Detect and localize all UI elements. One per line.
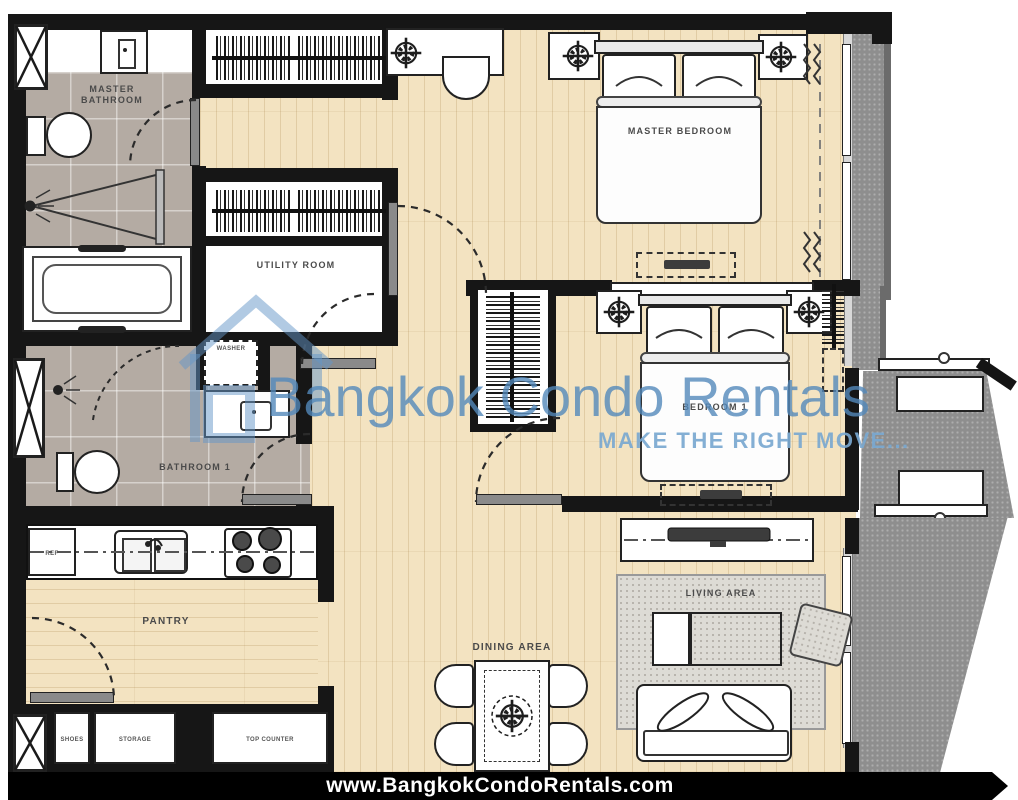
wall-corner-nub	[872, 28, 892, 44]
basin-icon	[118, 39, 136, 69]
room-label-dining-area: DINING AREA	[452, 642, 572, 655]
pillow	[718, 306, 784, 358]
washer: WASHER	[204, 340, 258, 386]
wall-closet2-top	[196, 168, 398, 182]
refrigerator: REF	[28, 528, 76, 576]
bedroom1-wardrobe-hangers	[822, 288, 844, 344]
footer-arrow	[992, 772, 1008, 800]
faucet-dot	[252, 410, 256, 414]
refrigerator-label: REF	[30, 551, 74, 557]
ac-condenser-unit	[896, 376, 984, 412]
utility-room-floor	[204, 244, 394, 332]
wall-masterbath-right-lower	[192, 166, 206, 344]
wall-closet2-bottom	[196, 236, 398, 246]
room-label-bathroom-1: BATHROOM 1	[140, 462, 250, 473]
bed-duvet	[596, 106, 762, 224]
washer-label: WASHER	[206, 346, 256, 352]
dining-table-runner	[484, 670, 540, 762]
room-label-master-bathroom: MASTER BATHROOM	[66, 84, 158, 107]
bathtub-grip	[78, 245, 126, 252]
bedroom1-wardrobe-door	[822, 348, 844, 392]
wall-closet1-bottom	[196, 84, 398, 98]
living-balcony-floor	[850, 518, 1014, 772]
bed-headboard	[594, 40, 764, 54]
faucet-dot	[123, 48, 127, 52]
dining-chair	[434, 664, 474, 708]
sink-icon	[240, 401, 272, 431]
basin-cabinet	[100, 30, 148, 74]
tv-console-living	[620, 518, 814, 562]
wall-washer-niche-right	[258, 346, 270, 390]
door-leaf-bedroom1	[476, 494, 562, 505]
sink-basin	[122, 538, 152, 572]
wall-masterbath-right-upper	[192, 30, 206, 98]
wardrobe-hangers	[486, 296, 540, 418]
room-label-living-area: LIVING AREA	[664, 588, 778, 599]
wall-living-east-stub	[845, 742, 859, 772]
door-leaf-master-bathroom	[190, 98, 200, 166]
wall-living-east-stub	[845, 518, 859, 554]
tv-ledge-master	[636, 252, 736, 278]
sofa-backrest	[643, 730, 789, 756]
sink-basin	[154, 538, 186, 572]
toilet-tank	[26, 116, 46, 156]
shaft-box	[13, 714, 47, 772]
closet-hangers	[216, 190, 290, 232]
master-balcony-floor	[852, 32, 884, 296]
drain-cap	[938, 352, 950, 364]
footer-bar: www.BangkokCondoRentals.com	[8, 772, 992, 800]
master-balcony-sliding-door	[842, 162, 851, 280]
tv-ledge-bedroom1	[660, 484, 772, 506]
shoes-cabinet: SHOES	[54, 712, 90, 764]
room-label-utility-room: UTILITY ROOM	[238, 260, 354, 271]
storage-cabinet: STORAGE	[94, 712, 176, 764]
top-counter-cabinet: TOP COUNTER	[212, 712, 328, 764]
coffee-table	[690, 612, 782, 666]
door-leaf-utility	[300, 358, 376, 369]
bathtub-basin	[42, 264, 172, 314]
wall-pantry-right-upper	[318, 506, 334, 602]
bathtub	[22, 246, 192, 332]
floor-plan: WASHER REF SHOES STORAGE TOP COUNTER	[0, 0, 1018, 800]
shoes-label: SHOES	[56, 737, 88, 743]
door-leaf-entry	[30, 692, 114, 703]
bed-headboard	[638, 294, 792, 306]
wall-masterbath-bottom	[24, 332, 200, 346]
master-balcony-rail	[884, 28, 891, 300]
vanity-counter	[204, 390, 290, 438]
wall-bedroom1-east	[845, 368, 859, 510]
room-label-bedroom-1: BEDROOM 1	[670, 402, 760, 413]
ac-condenser-unit	[898, 470, 984, 508]
pillow	[646, 306, 712, 358]
shaft-box	[14, 24, 48, 90]
nightstand	[548, 32, 600, 80]
toilet-bowl	[46, 112, 92, 158]
ac-ledge-sill-top	[878, 358, 990, 371]
kitchen-sink	[114, 530, 188, 574]
closet-hangers	[298, 36, 382, 80]
closet-hangers	[216, 36, 290, 80]
dining-chair	[434, 722, 474, 766]
stove	[224, 528, 292, 578]
top-counter-label: TOP COUNTER	[214, 737, 326, 743]
door-leaf-bathroom1	[242, 494, 312, 505]
storage-label: STORAGE	[96, 737, 174, 743]
wall-kitchen-top	[24, 506, 320, 524]
nightstand	[758, 34, 808, 80]
toilet-bowl	[74, 450, 120, 494]
footer-website: www.BangkokCondoRentals.com	[8, 772, 992, 800]
shaft-box	[13, 358, 45, 458]
ac-ledge-sill-bottom	[874, 504, 988, 517]
room-label-pantry: PANTRY	[116, 616, 216, 629]
living-balcony-sliding-door	[842, 652, 851, 744]
nightstand	[596, 290, 642, 334]
toilet-tank	[56, 452, 74, 492]
coffee-table-tray	[652, 612, 690, 666]
door-leaf-foyer	[388, 202, 398, 296]
master-balcony-sliding-door	[842, 44, 851, 156]
room-label-master-bedroom: MASTER BEDROOM	[624, 126, 736, 137]
closet-hangers	[298, 190, 382, 232]
bathtub-grip	[78, 326, 126, 333]
sofa	[636, 684, 792, 762]
bed-duvet	[640, 362, 790, 482]
